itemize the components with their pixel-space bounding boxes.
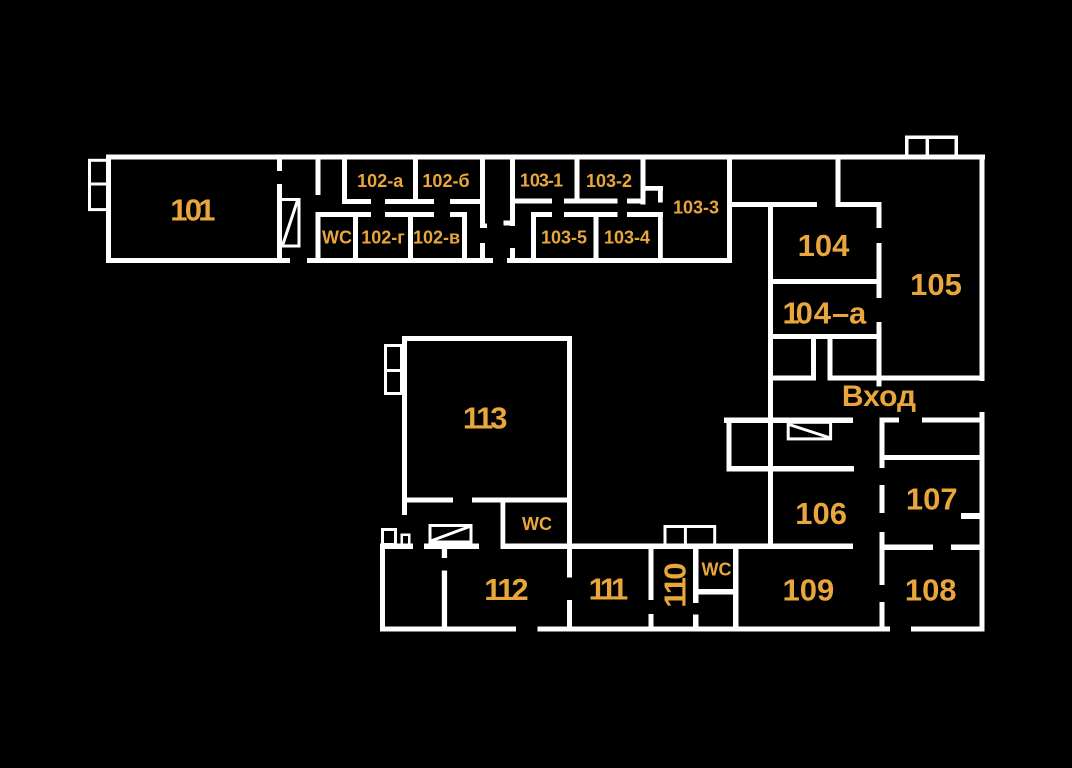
svg-text:102-а: 102-а [357,171,404,191]
svg-text:3: 3 [490,400,507,435]
svg-text:2: 2 [511,572,528,607]
svg-text:103-2: 103-2 [586,171,632,191]
svg-text:WC: WC [322,228,352,248]
svg-text:а: а [849,295,867,330]
svg-text:0: 0 [658,562,693,579]
svg-text:102-в: 102-в [413,228,460,248]
svg-text:WC: WC [522,514,552,534]
svg-text:107: 107 [906,482,958,517]
svg-text:1: 1 [520,171,530,191]
svg-text:103-3: 103-3 [673,198,719,218]
svg-text:Вход: Вход [842,380,916,413]
svg-text:4: 4 [814,295,832,330]
svg-text:WC: WC [702,560,732,580]
svg-text:0: 0 [796,295,813,330]
svg-text:108: 108 [905,572,957,607]
svg-text:102-г: 102-г [361,228,405,248]
svg-text:104: 104 [798,228,850,263]
svg-text:103-4: 103-4 [604,228,650,248]
svg-text:103-5: 103-5 [541,228,587,248]
svg-text:109: 109 [783,572,835,607]
svg-text:102-б: 102-б [422,171,469,191]
svg-text:1: 1 [611,572,628,607]
svg-text:106: 106 [795,496,847,531]
svg-text:1: 1 [198,192,215,227]
svg-text:105: 105 [910,267,962,302]
svg-text:–: – [832,295,849,330]
svg-text:1: 1 [553,171,563,191]
